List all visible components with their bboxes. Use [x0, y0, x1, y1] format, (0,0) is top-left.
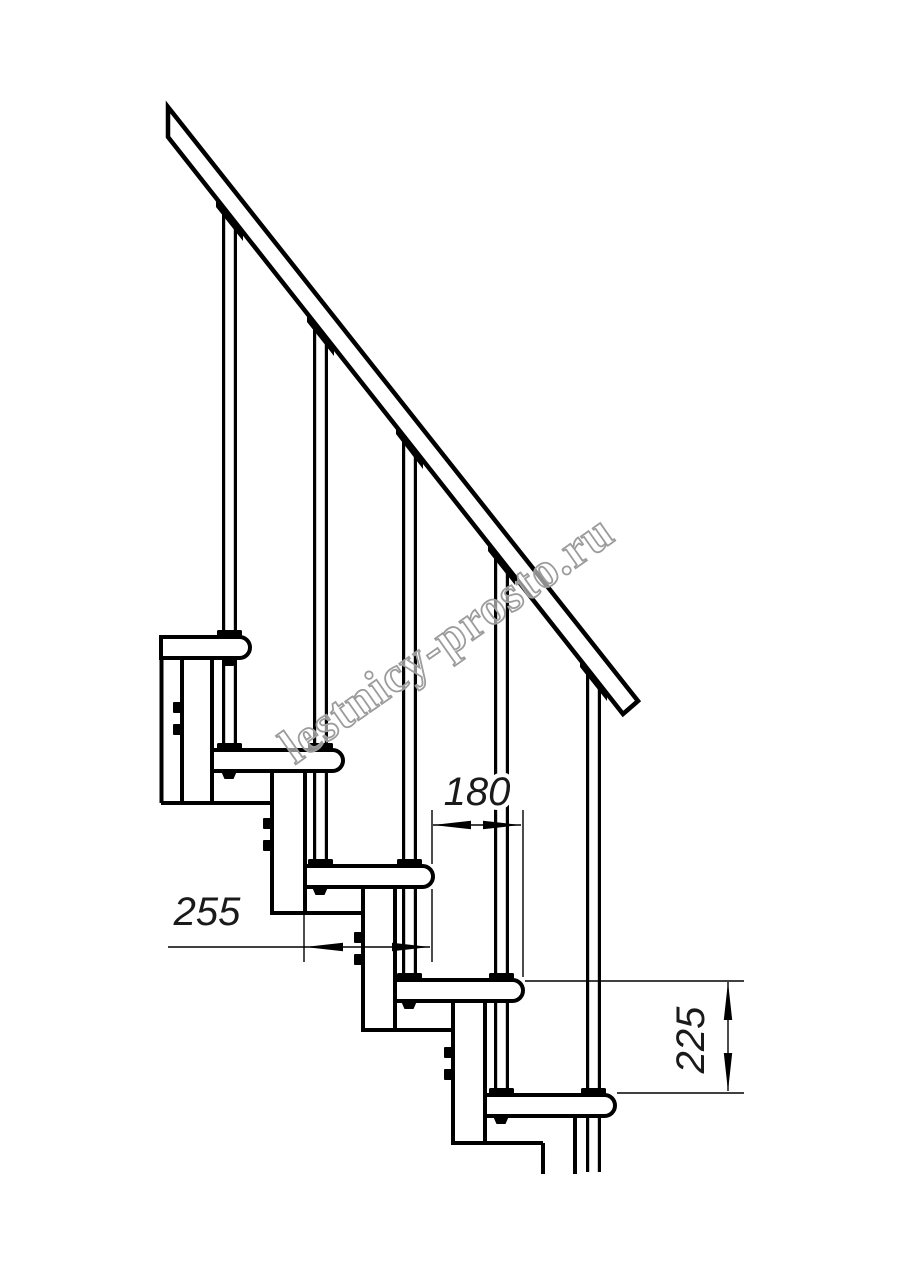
tread-1	[161, 637, 250, 658]
support-column-1	[182, 658, 212, 803]
nut-icon	[401, 1001, 417, 1009]
arrow-down-icon	[724, 1053, 732, 1091]
post-cap-icon	[397, 973, 422, 980]
arrow-right-icon	[483, 821, 521, 829]
arrow-up-icon	[724, 982, 732, 1020]
baluster-3	[404, 440, 416, 980]
dimension-going: 180	[432, 770, 523, 977]
arrow-right-icon	[392, 943, 430, 951]
technical-drawing-page: 180 255 225 lestnicy-prosto.ru	[0, 0, 914, 1280]
nut-icon	[493, 1116, 509, 1124]
nut-icon	[221, 771, 237, 779]
dimension-label-225: 225	[669, 1006, 713, 1074]
tread-4	[395, 980, 523, 1001]
bolt-icon	[173, 724, 182, 735]
arrow-left-icon	[433, 821, 471, 829]
bolt-icon	[444, 1047, 453, 1058]
post-cap-icon	[489, 973, 514, 980]
support-column-4	[453, 1001, 485, 1143]
bolt-icon	[173, 702, 182, 713]
post-cap-icon	[217, 630, 242, 637]
dimension-rise: 225	[525, 981, 744, 1093]
bolt-icon	[354, 954, 363, 965]
post-cap-icon	[217, 743, 242, 750]
tread-5	[485, 1095, 615, 1116]
staircase-technical-drawing: 180 255 225 lestnicy-prosto.ru	[0, 0, 914, 1280]
support-column-3	[363, 887, 395, 1030]
arrow-left-icon	[305, 943, 343, 951]
post-cap-icon	[581, 1088, 606, 1095]
bolt-icon	[263, 840, 272, 851]
bolt-icon	[354, 932, 363, 943]
dimension-label-180: 180	[444, 770, 511, 814]
baluster-1	[224, 214, 236, 750]
post-cap-icon	[308, 859, 333, 866]
bolt-icon	[444, 1069, 453, 1080]
dimension-label-255: 255	[173, 890, 241, 934]
post-cap-icon	[489, 1088, 514, 1095]
baluster-2	[315, 329, 327, 866]
tread-3	[305, 866, 433, 887]
post-cap-icon	[397, 859, 422, 866]
nut-icon	[312, 887, 328, 895]
support-column-2	[272, 771, 305, 913]
bolt-icon	[263, 818, 272, 829]
